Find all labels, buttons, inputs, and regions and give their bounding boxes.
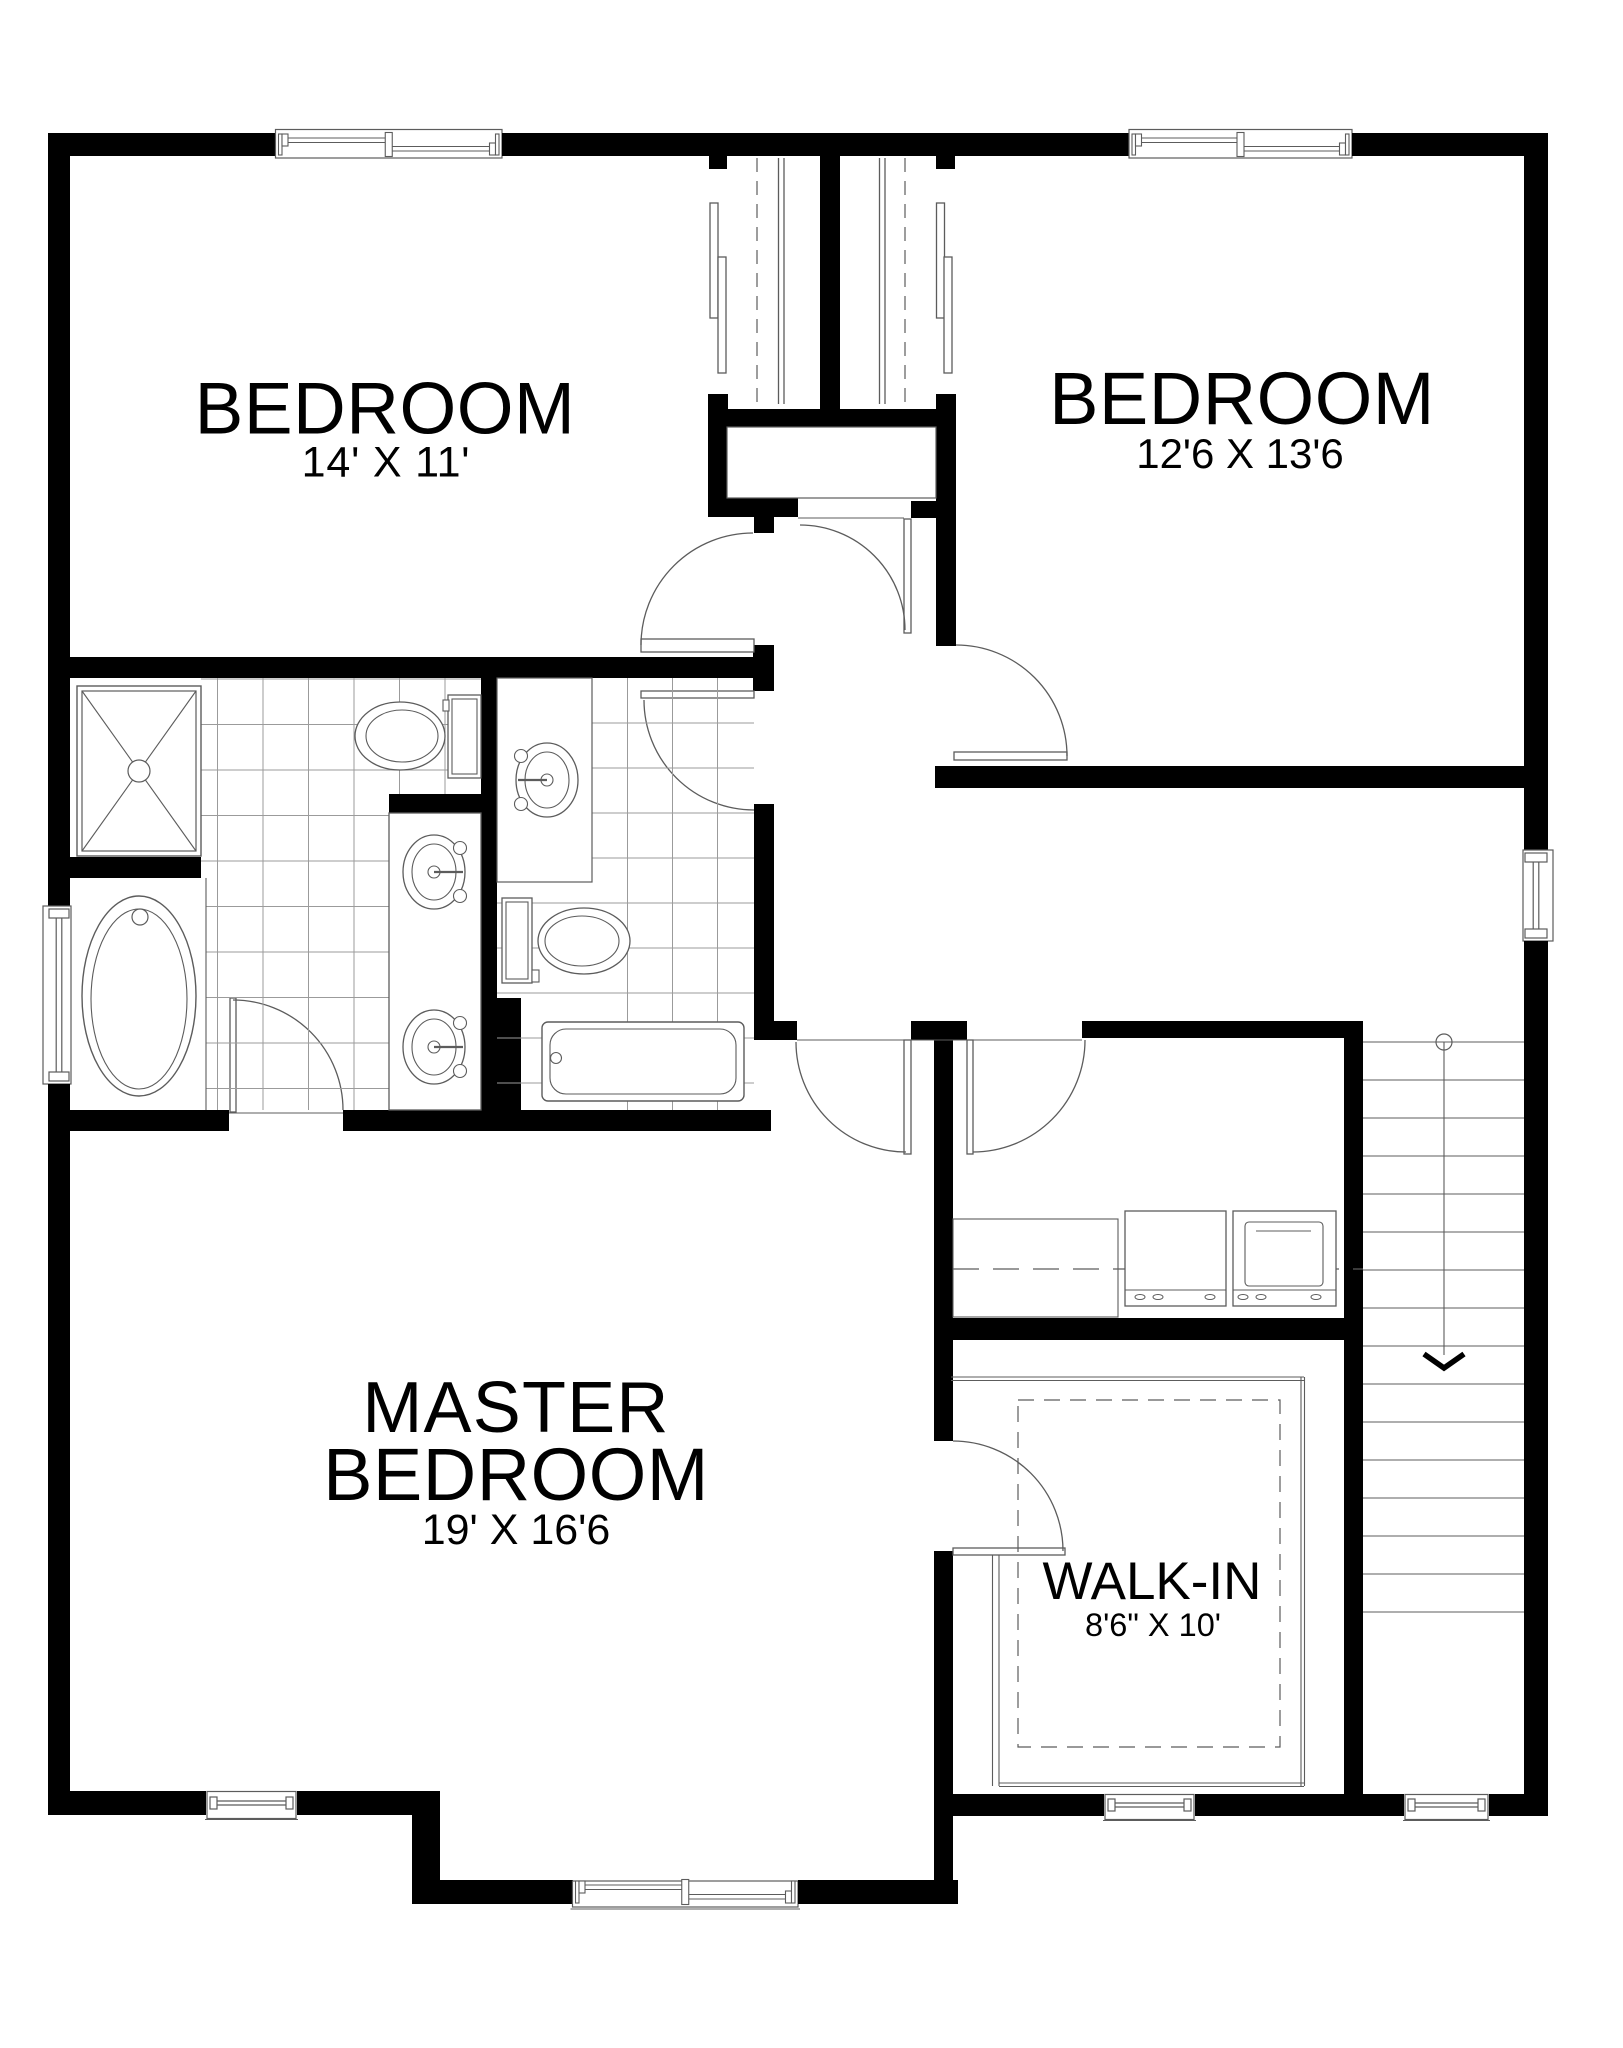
svg-text:19' X 16'6: 19' X 16'6: [422, 1506, 611, 1554]
svg-text:BEDROOM: BEDROOM: [195, 369, 576, 450]
svg-text:12'6 X 13'6: 12'6 X 13'6: [1136, 430, 1344, 477]
svg-text:14' X 11': 14' X 11': [302, 439, 471, 487]
svg-text:8'6" X 10': 8'6" X 10': [1085, 1607, 1221, 1643]
svg-text:BEDROOM: BEDROOM: [323, 1433, 709, 1516]
svg-text:WALK-IN: WALK-IN: [1043, 1552, 1262, 1611]
svg-text:BEDROOM: BEDROOM: [1049, 357, 1435, 440]
